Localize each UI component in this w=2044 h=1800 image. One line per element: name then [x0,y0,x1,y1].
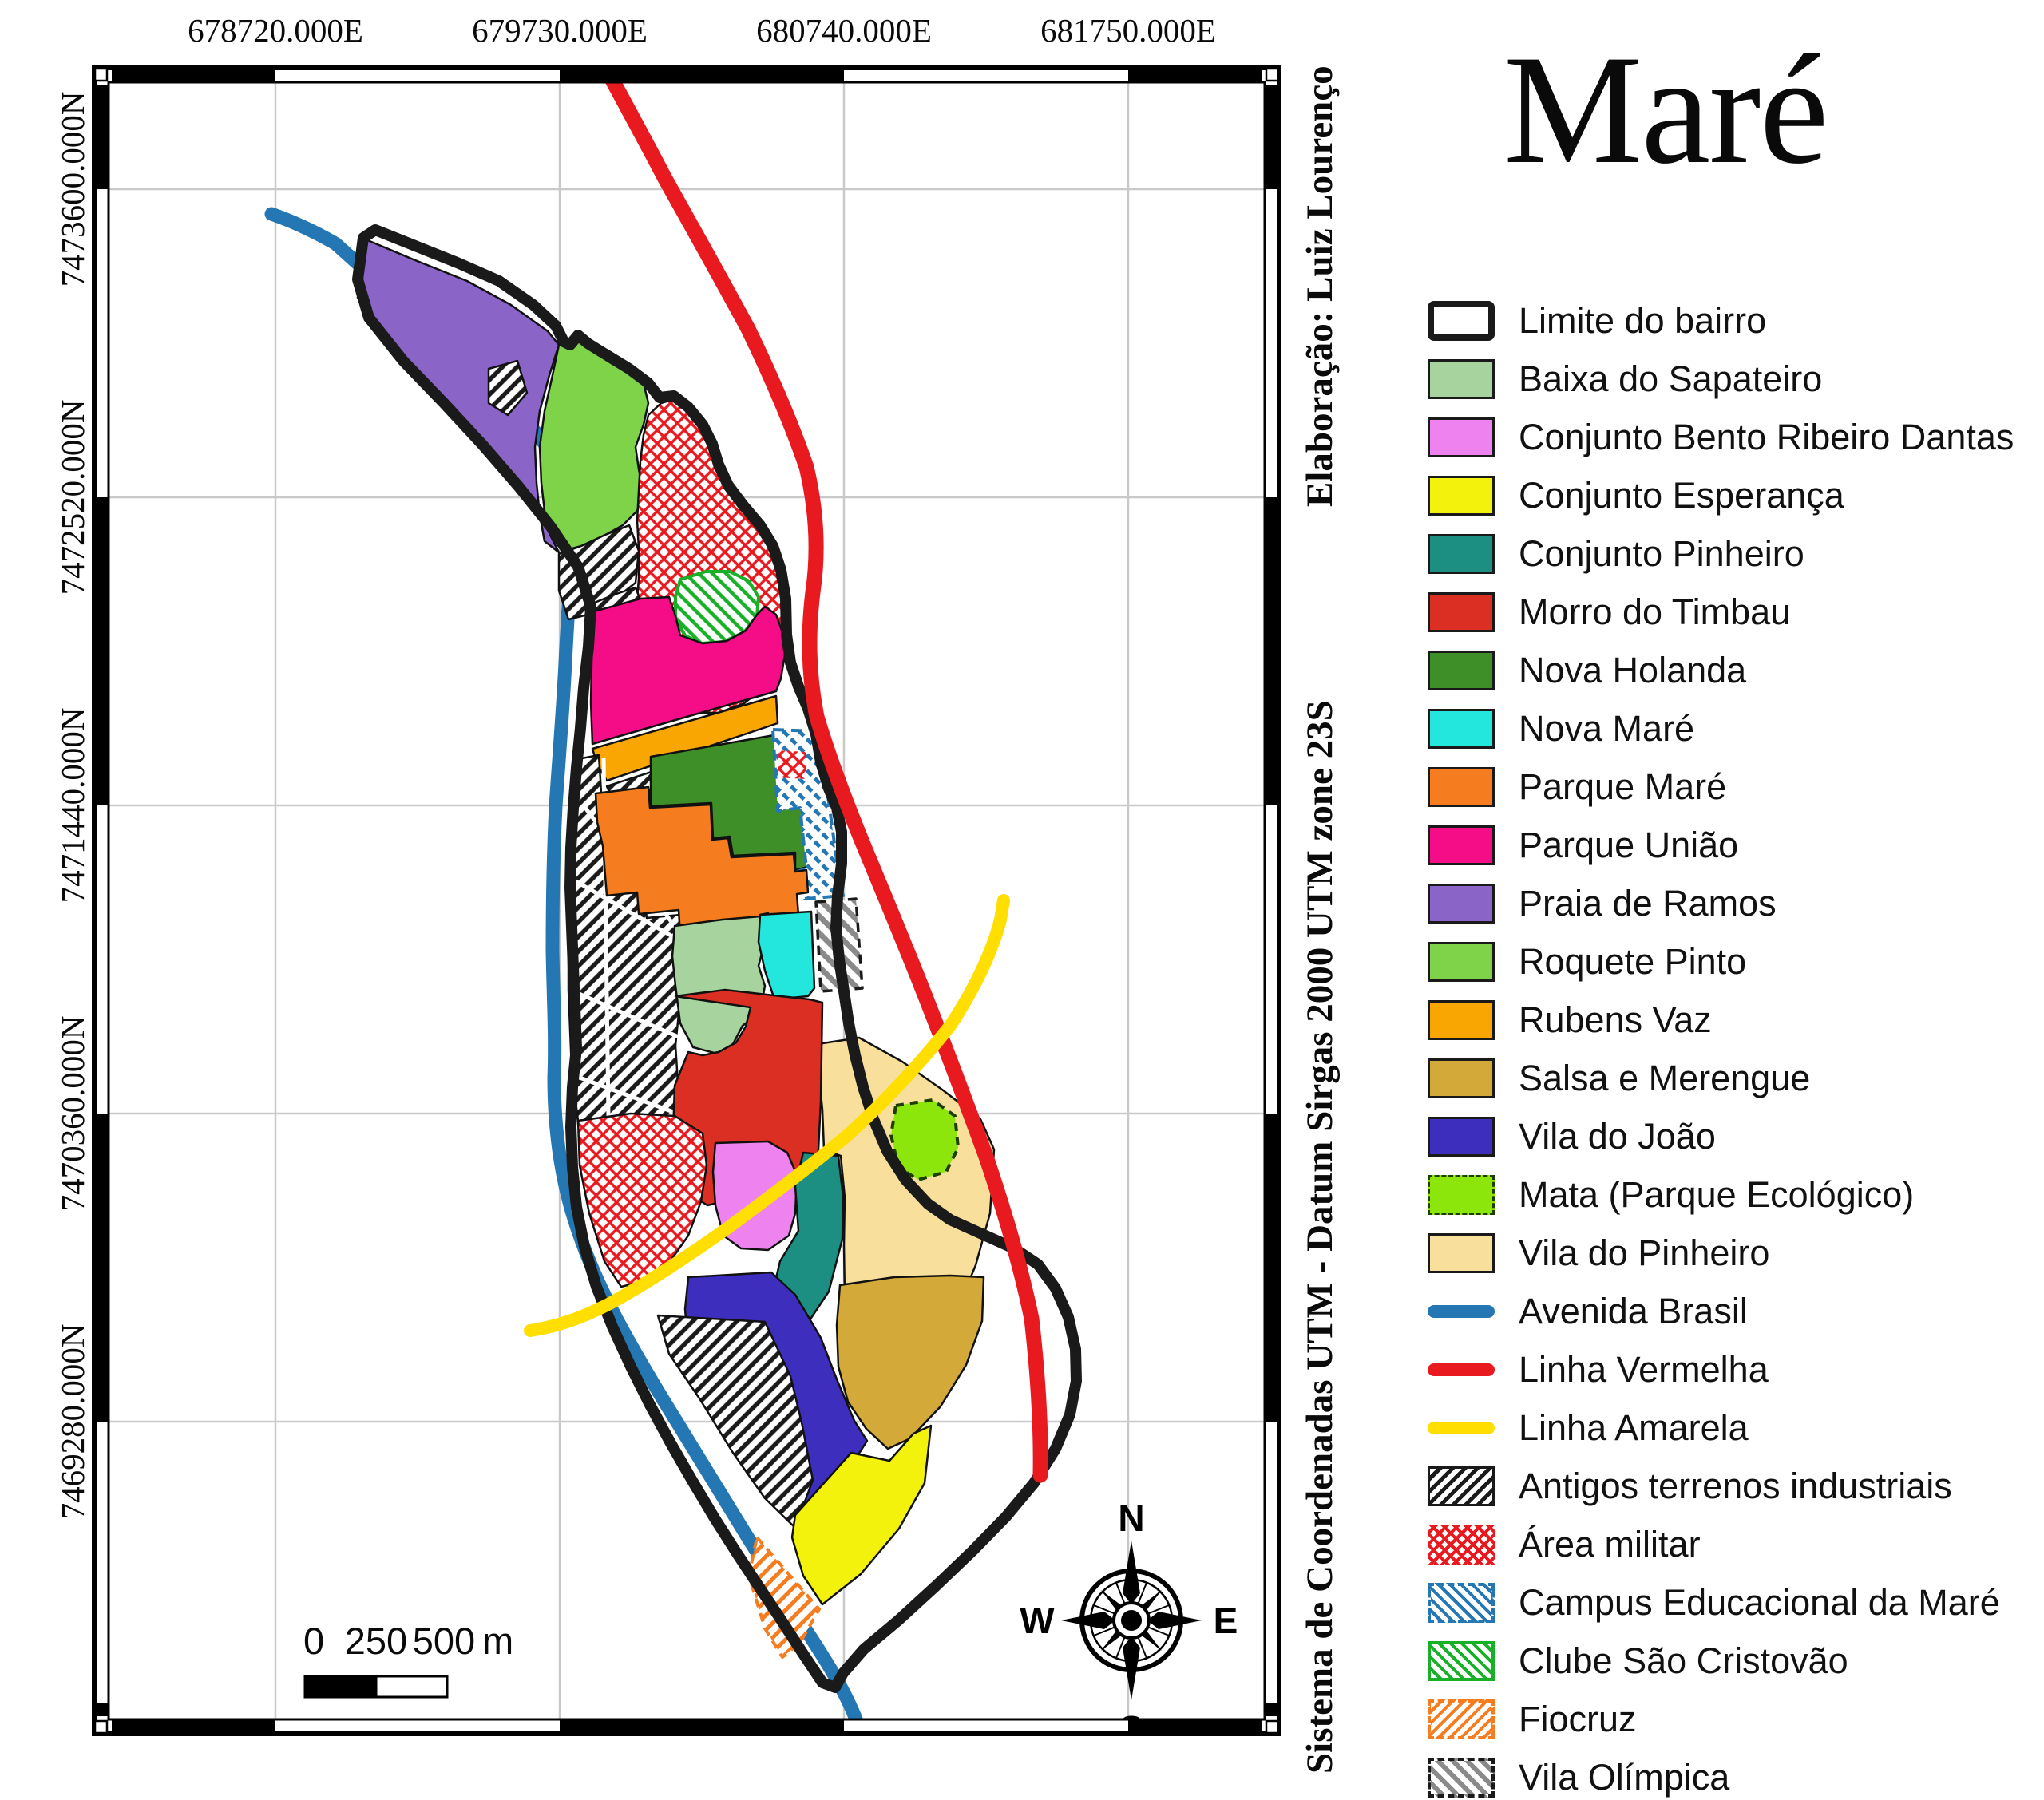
northing-label: 7470360.000N [54,1016,91,1212]
page: { "title": "Maré", "credits_right_top": … [0,0,2044,1795]
legend-item-label: Praia de Ramos [1519,883,1777,924]
map-frame-area: 678720.000E 679730.000E 680740.000E 6817… [0,0,1373,1795]
credits-author: Elaboração: Luiz Lourenço [1299,65,1341,507]
legend-swatch [1428,825,1495,865]
legend-item-label: Conjunto Bento Ribeiro Dantas [1519,417,2014,458]
legend-swatch [1428,592,1495,632]
legend-swatch [1428,1305,1495,1318]
legend-item: Avenida Brasil [1428,1289,2044,1334]
scale-label-unit: m [482,1620,513,1662]
legend-item: Linha Vermelha [1428,1347,2044,1392]
legend-item: Mata (Parque Ecológico) [1428,1173,2044,1217]
legend-item-label: Rubens Vaz [1519,999,1712,1041]
legend-item-label: Clube São Cristovão [1519,1640,1848,1682]
legend-swatch [1428,1466,1495,1506]
northing-label: 7472520.000N [54,400,91,595]
legend-item: Campus Educacional da Maré [1428,1580,2044,1625]
legend-swatch [1428,417,1495,457]
easting-label: 680740.000E [756,12,932,49]
legend-item: Nova Maré [1428,706,2044,751]
easting-label: 678720.000E [188,12,363,49]
legend-item: Nova Holanda [1428,648,2044,693]
legend-item: Roquete Pinto [1428,940,2044,984]
legend-swatch [1428,651,1495,690]
legend-swatch [1428,1058,1495,1098]
axis-left-northings: 7473600.000N 7472520.000N 7471440.000N 7… [54,92,91,1520]
legend-swatch [1428,942,1495,982]
legend-item-label: Mata (Parque Ecológico) [1519,1174,1914,1216]
legend-swatch [1428,1117,1495,1157]
easting-label: 679730.000E [472,12,648,49]
legend-item-label: Fiocruz [1519,1699,1637,1740]
legend-item: Morro do Timbau [1428,590,2044,635]
legend-item: Limite do bairro [1428,299,2044,343]
legend-swatch [1428,767,1495,807]
legend-swatch [1428,884,1495,924]
legend-item: Antigos terrenos industriais [1428,1464,2044,1509]
compass-n: N [1118,1497,1144,1539]
legend-item: Parque Maré [1428,765,2044,809]
compass-e: E [1214,1600,1238,1641]
legend-item: Linha Amarela [1428,1406,2044,1450]
legend-swatch [1428,1363,1495,1376]
legend-item: Conjunto Esperança [1428,473,2044,518]
legend-item-label: Salsa e Merengue [1519,1058,1810,1099]
legend-item-label: Roquete Pinto [1519,941,1746,983]
legend-item-label: Antigos terrenos industriais [1519,1466,1952,1507]
page-title: Maré [1503,32,2044,188]
legend-item: Baixa do Sapateiro [1428,357,2044,402]
northing-label: 7469280.000N [54,1324,91,1520]
legend-item-label: Morro do Timbau [1519,591,1790,633]
legend-item: Vila do João [1428,1114,2044,1159]
region-area-militar-campus [778,750,806,779]
legend-swatch [1428,1422,1495,1434]
credits-crs: Sistema de Coordenadas UTM - Datum Sirga… [1299,700,1341,1774]
legend-swatch [1428,476,1495,516]
legend-swatch [1428,1000,1495,1040]
legend-item-label: Vila Olímpica [1519,1757,1729,1798]
legend-item-label: Área militar [1519,1524,1701,1565]
legend-item-label: Nova Maré [1519,708,1694,750]
legend-item: Conjunto Pinheiro [1428,532,2044,576]
legend-item-label: Parque Maré [1519,766,1726,808]
map-canvas: 678720.000E 679730.000E 680740.000E 6817… [0,0,1373,1795]
scale-label-0: 0 [303,1620,324,1662]
legend-item: Parque União [1428,823,2044,868]
legend-swatch [1428,301,1495,341]
legend-item-label: Conjunto Pinheiro [1519,533,1804,575]
legend-swatch [1428,1175,1495,1215]
legend-item-label: Conjunto Esperança [1519,475,1844,516]
legend-item: Vila do Pinheiro [1428,1231,2044,1276]
legend-item-label: Nova Holanda [1519,650,1746,691]
legend-item-label: Linha Vermelha [1519,1349,1769,1391]
legend-swatch [1428,1758,1495,1798]
legend-swatch [1428,1583,1495,1623]
legend-item: Vila Olímpica [1428,1755,2044,1800]
legend-list: Limite do bairro Baixa do Sapateiro Conj… [1428,299,2044,1800]
scale-label-250: 250 [345,1620,407,1662]
legend-item: Clube São Cristovão [1428,1639,2044,1683]
legend-item-label: Linha Amarela [1519,1407,1749,1449]
legend-panel: Maré Limite do bairro Baixa do Sapateiro… [1428,0,2044,1795]
northing-label: 7473600.000N [54,92,91,287]
legend-swatch [1428,709,1495,749]
legend-swatch [1428,1233,1495,1273]
legend-item: Área militar [1428,1522,2044,1567]
legend-item: Salsa e Merengue [1428,1056,2044,1101]
legend-item: Rubens Vaz [1428,998,2044,1042]
axis-top-eastings: 678720.000E 679730.000E 680740.000E 6817… [188,12,1216,49]
legend-item-label: Baixa do Sapateiro [1519,358,1822,400]
scale-bar-black [305,1676,376,1697]
compass-w: W [1020,1600,1055,1641]
legend-item-label: Avenida Brasil [1519,1291,1748,1332]
northing-label: 7471440.000N [54,708,91,904]
legend-swatch [1428,359,1495,399]
legend-item: Praia de Ramos [1428,881,2044,926]
scale-label-500: 500 [413,1620,475,1662]
legend-item: Conjunto Bento Ribeiro Dantas [1428,415,2044,460]
legend-swatch [1428,1525,1495,1565]
legend-item-label: Parque União [1519,825,1738,866]
scale-bar-white [376,1676,447,1697]
legend-swatch [1428,534,1495,574]
legend-item-label: Vila do João [1519,1116,1716,1157]
legend-item-label: Vila do Pinheiro [1519,1232,1769,1274]
easting-label: 681750.000E [1040,12,1216,49]
legend-item-label: Campus Educacional da Maré [1519,1582,2000,1624]
legend-item: Fiocruz [1428,1697,2044,1742]
legend-swatch [1428,1699,1495,1739]
legend-swatch [1428,1641,1495,1681]
legend-item-label: Limite do bairro [1519,300,1766,342]
